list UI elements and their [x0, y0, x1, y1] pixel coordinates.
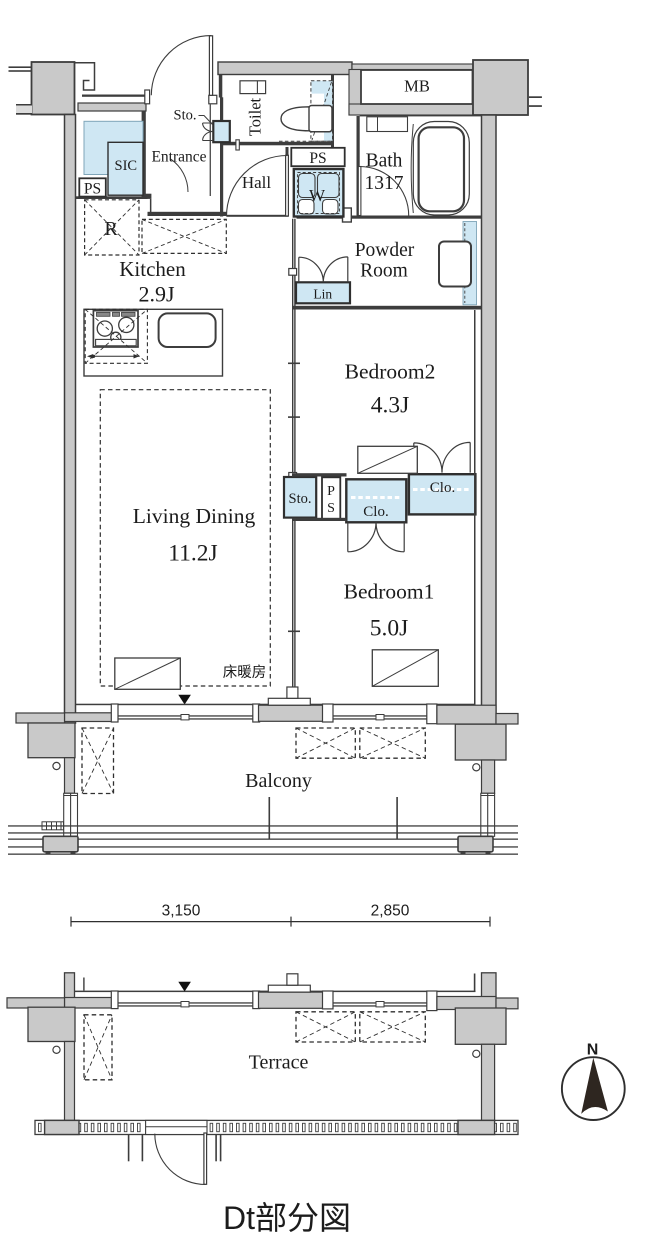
svg-text:N: N	[587, 1042, 599, 1059]
svg-text:4.3J: 4.3J	[371, 393, 410, 419]
svg-text:3,150: 3,150	[162, 903, 201, 920]
svg-text:P: P	[327, 484, 335, 499]
svg-text:Clo.: Clo.	[363, 504, 388, 520]
svg-text:5.0J: 5.0J	[370, 616, 409, 642]
svg-text:Sto.: Sto.	[289, 491, 312, 507]
svg-text:Hall: Hall	[242, 173, 272, 192]
svg-text:11.2J: 11.2J	[168, 541, 217, 567]
svg-text:Sto.: Sto.	[174, 108, 197, 124]
svg-text:Lin: Lin	[313, 287, 332, 302]
svg-text:S: S	[327, 501, 335, 516]
svg-text:2.9J: 2.9J	[138, 282, 175, 307]
svg-text:MB: MB	[404, 77, 430, 96]
svg-text:Bedroom1: Bedroom1	[344, 580, 435, 604]
svg-text:Bath: Bath	[366, 151, 403, 172]
svg-text:Clo.: Clo.	[430, 480, 455, 496]
svg-text:SIC: SIC	[115, 158, 138, 174]
svg-text:Room: Room	[360, 261, 408, 282]
svg-text:1317: 1317	[365, 173, 404, 194]
svg-text:床暖房: 床暖房	[223, 664, 267, 681]
svg-text:Balcony: Balcony	[245, 770, 312, 792]
svg-text:Living Dining: Living Dining	[133, 504, 256, 528]
svg-text:Dt部分図: Dt部分図	[223, 1200, 351, 1236]
svg-text:PS: PS	[84, 181, 101, 198]
svg-text:Terrace: Terrace	[249, 1052, 309, 1074]
svg-text:Powder: Powder	[355, 240, 415, 261]
svg-text:R: R	[104, 218, 118, 240]
svg-text:Entrance: Entrance	[151, 149, 206, 166]
svg-text:Kitchen: Kitchen	[119, 257, 186, 281]
svg-text:W: W	[309, 186, 326, 205]
svg-text:2,850: 2,850	[371, 903, 410, 920]
svg-text:Toilet: Toilet	[246, 97, 265, 136]
svg-text:PS: PS	[309, 150, 326, 167]
svg-text:Bedroom2: Bedroom2	[345, 360, 436, 384]
